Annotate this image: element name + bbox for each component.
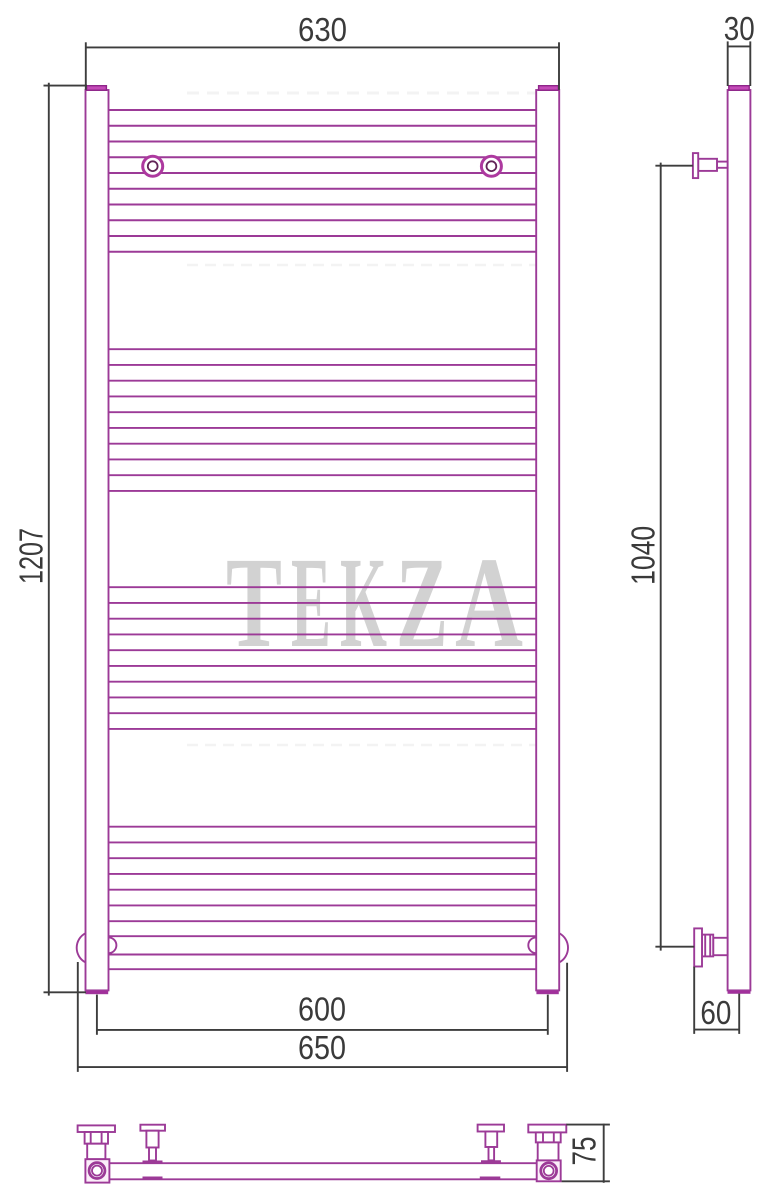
svg-text:30: 30 <box>724 10 755 47</box>
svg-text:75: 75 <box>565 1137 602 1166</box>
svg-text:1040: 1040 <box>625 526 662 585</box>
svg-text:650: 650 <box>298 1029 346 1066</box>
svg-text:60: 60 <box>700 994 731 1031</box>
svg-text:1207: 1207 <box>12 528 49 584</box>
svg-text:630: 630 <box>298 11 347 48</box>
svg-text:600: 600 <box>298 990 346 1027</box>
